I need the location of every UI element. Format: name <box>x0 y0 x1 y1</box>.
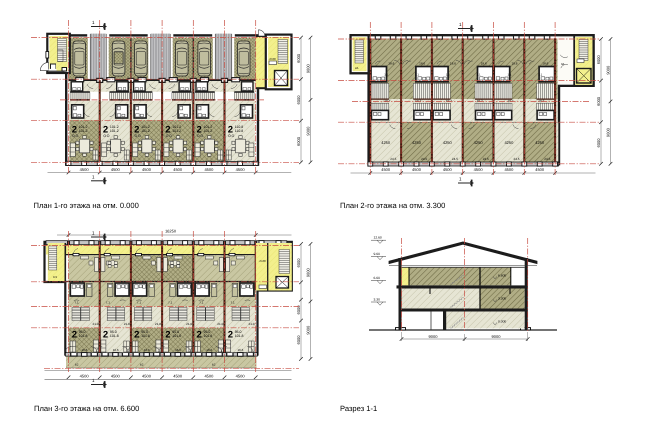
svg-text:1.1: 1.1 <box>384 73 388 77</box>
svg-text:16.6: 16.6 <box>175 348 181 352</box>
svg-text:4500: 4500 <box>204 373 214 378</box>
svg-text:24.5: 24.5 <box>390 157 396 161</box>
svg-text:6000: 6000 <box>596 55 601 65</box>
svg-text:2: 2 <box>72 330 77 341</box>
svg-text:+6.60: +6.60 <box>259 259 267 263</box>
svg-text:101.2: 101.2 <box>110 129 119 133</box>
svg-text:21.0: 21.0 <box>186 322 192 326</box>
svg-text:2: 2 <box>197 330 202 341</box>
svg-text:9000: 9000 <box>305 63 310 73</box>
svg-text:19.7: 19.7 <box>446 99 452 103</box>
svg-text:12.60: 12.60 <box>374 236 382 240</box>
svg-text:101.2: 101.2 <box>204 129 213 133</box>
svg-text:План 2-го этажа на отм. 3.300: План 2-го этажа на отм. 3.300 <box>340 201 445 210</box>
svg-text:24.5: 24.5 <box>421 157 427 161</box>
svg-text:6000: 6000 <box>296 95 301 105</box>
svg-text:16.6: 16.6 <box>113 348 119 352</box>
svg-text:3.30: 3.30 <box>374 298 381 302</box>
svg-text:4500: 4500 <box>142 167 152 172</box>
svg-text:2: 2 <box>197 125 202 136</box>
svg-text:16.6: 16.6 <box>82 348 88 352</box>
svg-text:2: 2 <box>165 330 170 341</box>
svg-text:19.7: 19.7 <box>538 99 544 103</box>
svg-text:6000: 6000 <box>596 96 601 106</box>
svg-text:4250: 4250 <box>474 140 484 145</box>
svg-text:2: 2 <box>134 330 139 341</box>
svg-text:21.0: 21.0 <box>124 322 130 326</box>
svg-text:4500: 4500 <box>474 167 484 172</box>
svg-text:2: 2 <box>165 125 170 136</box>
svg-text:18.6: 18.6 <box>450 62 456 66</box>
svg-text:9000: 9000 <box>429 334 439 339</box>
svg-text:7.1: 7.1 <box>75 301 80 305</box>
svg-text:2: 2 <box>228 125 233 136</box>
svg-text:18.6: 18.6 <box>481 62 487 66</box>
svg-text:1.1: 1.1 <box>415 73 419 77</box>
svg-text:101.8: 101.8 <box>79 334 88 338</box>
svg-text:4500: 4500 <box>504 167 514 172</box>
svg-text:9000: 9000 <box>605 65 610 75</box>
svg-text:16.6: 16.6 <box>238 348 244 352</box>
svg-text:16.6: 16.6 <box>144 348 150 352</box>
svg-text:4250: 4250 <box>535 140 545 145</box>
svg-text:Разрез 1-1: Разрез 1-1 <box>340 404 377 413</box>
svg-text:2: 2 <box>72 125 77 136</box>
svg-text:6.60: 6.60 <box>374 276 381 280</box>
svg-text:16.6: 16.6 <box>206 348 212 352</box>
svg-text:4500: 4500 <box>173 373 183 378</box>
svg-text:6000: 6000 <box>596 138 601 148</box>
svg-text:9000: 9000 <box>305 126 310 136</box>
svg-text:21.0: 21.0 <box>217 322 223 326</box>
svg-text:7.1: 7.1 <box>231 301 236 305</box>
svg-text:9.60: 9.60 <box>374 252 381 256</box>
svg-text:19.7: 19.7 <box>477 99 483 103</box>
svg-text:9000: 9000 <box>492 334 502 339</box>
svg-text:19.7: 19.7 <box>415 99 421 103</box>
svg-text:21.0: 21.0 <box>249 322 255 326</box>
svg-text:4500: 4500 <box>412 167 422 172</box>
svg-text:24.5: 24.5 <box>483 157 489 161</box>
svg-text:9000: 9000 <box>605 127 610 137</box>
svg-text:Б2: Б2 <box>212 363 216 367</box>
svg-text:19.7: 19.7 <box>384 99 390 103</box>
svg-text:1.1: 1.1 <box>508 73 512 77</box>
svg-text:4250: 4250 <box>412 140 422 145</box>
svg-text:101.8: 101.8 <box>172 334 181 338</box>
svg-text:19.7: 19.7 <box>508 99 514 103</box>
svg-text:4250: 4250 <box>381 140 391 145</box>
svg-text:Б2: Б2 <box>140 363 144 367</box>
svg-text:7.1: 7.1 <box>137 301 142 305</box>
svg-text:4250: 4250 <box>443 140 453 145</box>
svg-text:7.1: 7.1 <box>106 301 111 305</box>
svg-text:2: 2 <box>103 330 108 341</box>
svg-text:План 1-го этажа на отм. 0.000: План 1-го этажа на отм. 0.000 <box>34 201 139 210</box>
svg-text:4500: 4500 <box>111 167 121 172</box>
svg-text:9000: 9000 <box>305 325 310 335</box>
svg-text:4250: 4250 <box>504 140 514 145</box>
svg-text:4500: 4500 <box>381 167 391 172</box>
svg-text:+0.00: +0.00 <box>269 57 277 61</box>
svg-text:2А: 2А <box>355 66 359 70</box>
svg-text:18.6: 18.6 <box>512 62 518 66</box>
svg-text:7.1: 7.1 <box>168 301 173 305</box>
svg-text:16250: 16250 <box>165 229 177 234</box>
svg-text:24.5: 24.5 <box>544 157 550 161</box>
svg-text:Б2: Б2 <box>75 363 79 367</box>
svg-text:4500: 4500 <box>173 167 183 172</box>
svg-text:1.1: 1.1 <box>446 73 450 77</box>
svg-text:2: 2 <box>228 330 233 341</box>
svg-text:1.1: 1.1 <box>477 73 481 77</box>
svg-text:24.5: 24.5 <box>452 157 458 161</box>
svg-text:3.300: 3.300 <box>498 297 506 301</box>
svg-text:21.0: 21.0 <box>155 322 161 326</box>
svg-text:7.1: 7.1 <box>199 301 204 305</box>
svg-text:9000: 9000 <box>305 267 310 277</box>
svg-text:4500: 4500 <box>236 373 246 378</box>
svg-text:101.2: 101.2 <box>172 129 181 133</box>
svg-text:6000: 6000 <box>296 53 301 63</box>
svg-text:18.6: 18.6 <box>542 62 548 66</box>
svg-text:2: 2 <box>103 125 108 136</box>
svg-text:9А: 9А <box>561 62 565 66</box>
svg-text:24.5: 24.5 <box>514 157 520 161</box>
svg-text:9.9: 9.9 <box>53 275 57 279</box>
svg-text:4500: 4500 <box>80 167 90 172</box>
svg-text:101.8: 101.8 <box>235 334 244 338</box>
svg-text:6.600: 6.600 <box>498 274 506 278</box>
svg-text:101.8: 101.8 <box>204 334 213 338</box>
svg-text:4500: 4500 <box>142 373 152 378</box>
svg-text:4500: 4500 <box>443 167 453 172</box>
svg-text:6000: 6000 <box>296 335 301 345</box>
svg-text:1.1: 1.1 <box>538 73 542 77</box>
svg-text:101.8: 101.8 <box>110 334 119 338</box>
svg-text:101.2: 101.2 <box>141 129 150 133</box>
svg-text:4500: 4500 <box>535 167 545 172</box>
svg-text:0.000: 0.000 <box>498 320 506 324</box>
svg-text:18.6: 18.6 <box>419 62 425 66</box>
svg-text:План 3-го этажа на отм. 6.600: План 3-го этажа на отм. 6.600 <box>34 404 139 413</box>
svg-text:4500: 4500 <box>204 167 214 172</box>
svg-text:4500: 4500 <box>80 373 90 378</box>
svg-text:18.6: 18.6 <box>388 62 394 66</box>
svg-text:110.8: 110.8 <box>235 129 244 133</box>
svg-text:4500: 4500 <box>111 373 121 378</box>
svg-text:6000: 6000 <box>296 258 301 268</box>
svg-text:101.2: 101.2 <box>79 129 88 133</box>
svg-text:101.8: 101.8 <box>141 334 150 338</box>
svg-text:2: 2 <box>134 125 139 136</box>
svg-text:4500: 4500 <box>236 167 246 172</box>
svg-text:6000: 6000 <box>296 136 301 146</box>
svg-text:21.0: 21.0 <box>93 322 99 326</box>
